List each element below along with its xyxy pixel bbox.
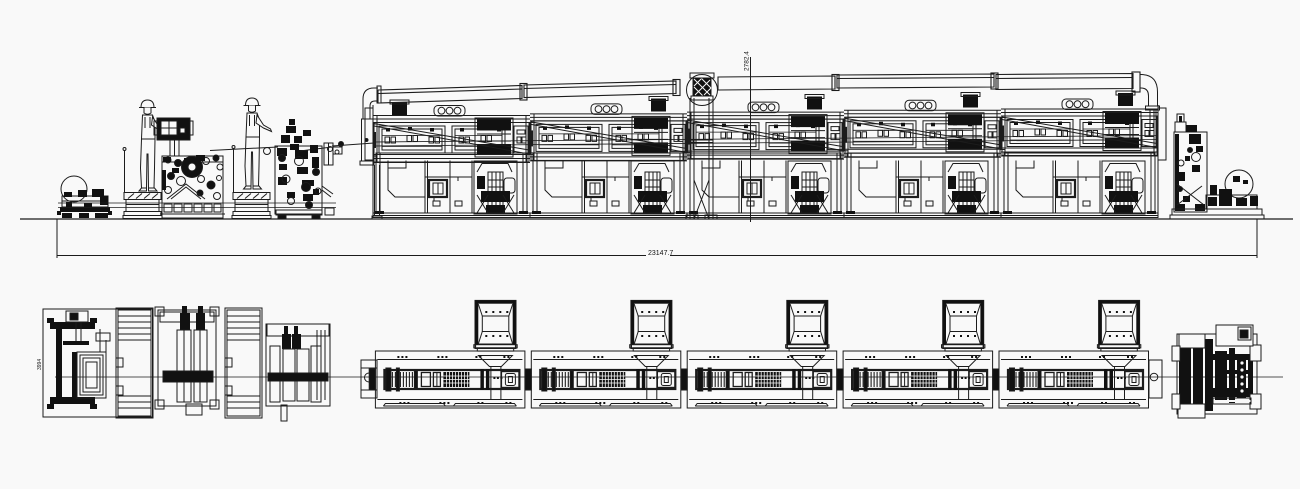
svg-text:23147.7: 23147.7 — [648, 250, 673, 257]
svg-text:3994: 3994 — [37, 359, 43, 370]
svg-text:2782.4: 2782.4 — [744, 51, 751, 71]
